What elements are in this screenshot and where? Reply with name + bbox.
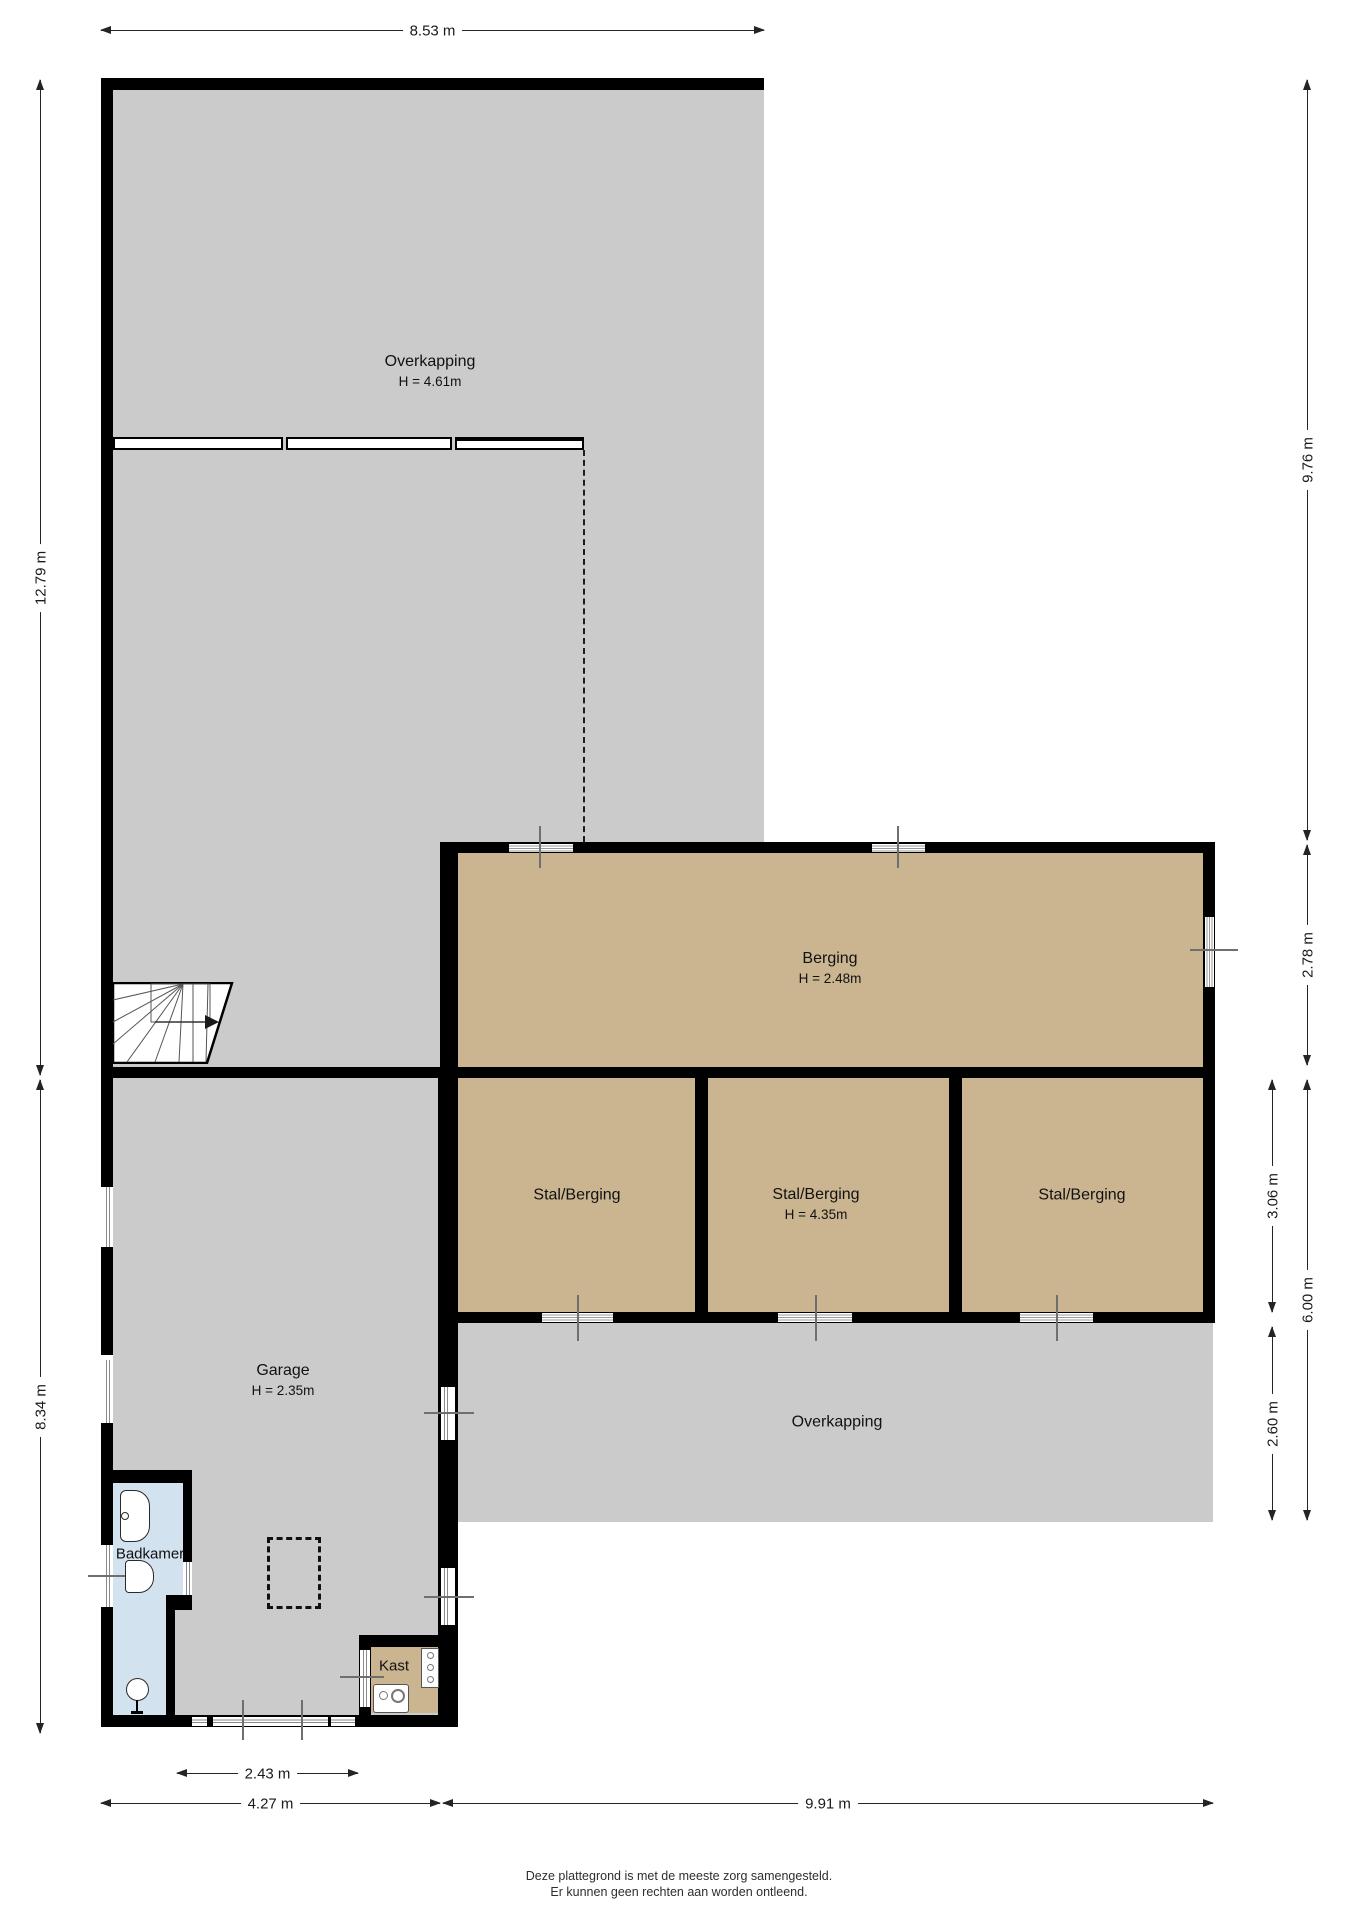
sink-faucet-icon — [121, 1512, 129, 1520]
dim-bottom-window: 2.43 m — [177, 1773, 358, 1774]
boiler-knob-icon — [427, 1676, 434, 1683]
badkamer-label: Badkamer — [116, 1544, 184, 1564]
fence-segment-3 — [455, 437, 584, 450]
window-tick — [424, 1596, 474, 1598]
berging-top-window-1 — [509, 844, 573, 852]
dim-right-total: 6.00 m — [1307, 1080, 1308, 1520]
kast-label: Kast — [379, 1656, 409, 1676]
dim-label: 8.53 m — [403, 23, 463, 40]
left-exterior-wall-upper — [101, 78, 113, 1187]
arrowhead — [1268, 1510, 1276, 1521]
floorplan-page: Overkapping H = 4.61m Berging H = 2.48m … — [0, 0, 1358, 1920]
arrowhead — [754, 26, 765, 34]
overkapping-boundary-dashed-line — [583, 450, 585, 842]
stal-divider-wall-2 — [949, 1078, 962, 1312]
garage-right-window-1 — [441, 1387, 455, 1440]
top-exterior-wall — [101, 78, 764, 90]
dim-left-lower: 8.34 m — [40, 1080, 41, 1733]
dim-bottom-right: 9.91 m — [443, 1803, 1213, 1804]
staircase — [113, 982, 234, 1064]
window-tick — [1056, 1295, 1058, 1341]
room-height: H = 2.35m — [252, 1382, 315, 1400]
garage-bottom-window-divider-1 — [207, 1717, 213, 1726]
berging-right-wall — [1203, 842, 1215, 1323]
arrowhead — [36, 1079, 44, 1090]
dim-label: 12.79 m — [33, 543, 50, 611]
room-name: Stal/Berging — [1038, 1186, 1125, 1207]
berging-top-window-2 — [872, 844, 925, 852]
boiler-knob-icon — [427, 1664, 434, 1671]
badkamer-right-wall-upper — [183, 1483, 192, 1562]
badkamer-right-wall-lower — [166, 1610, 175, 1715]
stal-berging-1-label: Stal/Berging — [533, 1186, 620, 1207]
dim-label: 2.78 m — [1300, 925, 1317, 985]
room-name: Stal/Berging — [533, 1186, 620, 1207]
overkapping-bottom-label: Overkapping — [792, 1413, 883, 1434]
shower-drain-icon — [126, 1678, 149, 1701]
dim-label: 9.76 m — [1300, 430, 1317, 490]
fence-segment-2 — [286, 437, 452, 450]
window-tick — [577, 1295, 579, 1341]
kast-top-wall — [359, 1635, 458, 1647]
disclaimer-line-2: Er kunnen geen rechten aan worden ontlee… — [0, 1884, 1358, 1900]
arrowhead — [176, 1769, 187, 1777]
badkamer-jog-wall — [166, 1595, 192, 1610]
arrowhead — [36, 79, 44, 90]
garage-left-window-1 — [103, 1187, 113, 1247]
arrowhead — [1268, 1302, 1276, 1313]
window-tick — [88, 1575, 128, 1577]
room-height: H = 2.48m — [799, 970, 862, 988]
room-name: Berging — [799, 949, 862, 970]
window-tick — [1190, 949, 1238, 951]
room-name: Garage — [252, 1361, 315, 1382]
badkamer-top-wall — [101, 1470, 192, 1483]
arrowhead — [430, 1799, 441, 1807]
arrowhead — [442, 1799, 453, 1807]
overkapping-top-area — [113, 90, 764, 842]
dim-label: 9.91 m — [798, 1796, 858, 1813]
garage-bottom-window-divider-2 — [328, 1717, 331, 1726]
dim-label: 4.27 m — [241, 1796, 301, 1813]
stal-berging-2-label: Stal/Berging H = 4.35m — [772, 1185, 859, 1223]
dim-label: 8.34 m — [33, 1377, 50, 1437]
dim-label: 3.06 m — [1265, 1166, 1282, 1226]
overkapping-top-label: Overkapping H = 4.61m — [385, 352, 476, 390]
garage-dashed-box — [267, 1537, 321, 1609]
fence-segment-1 — [113, 437, 283, 450]
arrowhead — [1303, 1079, 1311, 1090]
room-name: Overkapping — [385, 352, 476, 373]
stal-divider-wall-1 — [695, 1078, 708, 1312]
dim-left-upper: 12.79 m — [40, 80, 41, 1075]
arrowhead — [1203, 1799, 1214, 1807]
dim-right-upper: 9.76 m — [1307, 80, 1308, 840]
dim-label: 2.60 m — [1265, 1394, 1282, 1454]
window-tick — [424, 1412, 474, 1414]
berging-right-window — [1205, 917, 1214, 987]
badkamer-left-wall-lower — [101, 1607, 113, 1727]
kast-door-opening — [360, 1650, 370, 1707]
berging-left-wall — [440, 842, 458, 1067]
arrowhead — [1303, 1055, 1311, 1066]
arrowhead — [1303, 830, 1311, 841]
badkamer-door-opening — [183, 1562, 192, 1595]
window-tick — [340, 1676, 384, 1678]
dim-right-stal: 3.06 m — [1272, 1080, 1273, 1312]
room-height: H = 4.35m — [772, 1206, 859, 1224]
berging-label: Berging H = 2.48m — [799, 949, 862, 987]
window-tick — [815, 1295, 817, 1341]
window-tick — [301, 1700, 303, 1740]
arrowhead — [36, 1723, 44, 1734]
garage-label: Garage H = 2.35m — [252, 1361, 315, 1399]
window-tick — [539, 826, 541, 868]
arrowhead — [348, 1769, 359, 1777]
arrowhead — [100, 1799, 111, 1807]
dim-label: 2.43 m — [238, 1766, 298, 1783]
room-name: Stal/Berging — [772, 1185, 859, 1206]
room-name: Overkapping — [792, 1413, 883, 1434]
arrowhead — [1303, 844, 1311, 855]
garage-left-window-2 — [103, 1360, 113, 1423]
window-tick — [242, 1700, 244, 1740]
room-name: Badkamer — [116, 1544, 184, 1564]
left-exterior-wall-lower — [101, 1423, 113, 1470]
washer-drum-icon — [391, 1689, 405, 1703]
boiler-knob-icon — [427, 1652, 434, 1659]
arrowhead — [1303, 1510, 1311, 1521]
dim-right-overkapping: 2.60 m — [1272, 1327, 1273, 1520]
garage-berging-divider-wall — [101, 1067, 1213, 1078]
toilet-icon — [125, 1560, 154, 1593]
dim-right-berging: 2.78 m — [1307, 845, 1308, 1065]
dim-bottom-left: 4.27 m — [101, 1803, 440, 1804]
window-tick — [897, 826, 899, 868]
left-exterior-wall-mid — [101, 1247, 113, 1355]
arrowhead — [100, 26, 111, 34]
dim-top-width: 8.53 m — [101, 30, 764, 31]
disclaimer: Deze plattegrond is met de meeste zorg s… — [0, 1868, 1358, 1901]
room-name: Kast — [379, 1656, 409, 1676]
arrowhead — [1303, 79, 1311, 90]
stal-berging-3-label: Stal/Berging — [1038, 1186, 1125, 1207]
room-height: H = 4.61m — [385, 373, 476, 391]
arrowhead — [1268, 1326, 1276, 1337]
arrowhead — [1268, 1079, 1276, 1090]
arrowhead — [36, 1065, 44, 1076]
shower-drain-base — [131, 1711, 143, 1714]
washer-dial-icon — [379, 1691, 388, 1700]
disclaimer-line-1: Deze plattegrond is met de meeste zorg s… — [0, 1868, 1358, 1884]
dim-label: 6.00 m — [1300, 1270, 1317, 1330]
